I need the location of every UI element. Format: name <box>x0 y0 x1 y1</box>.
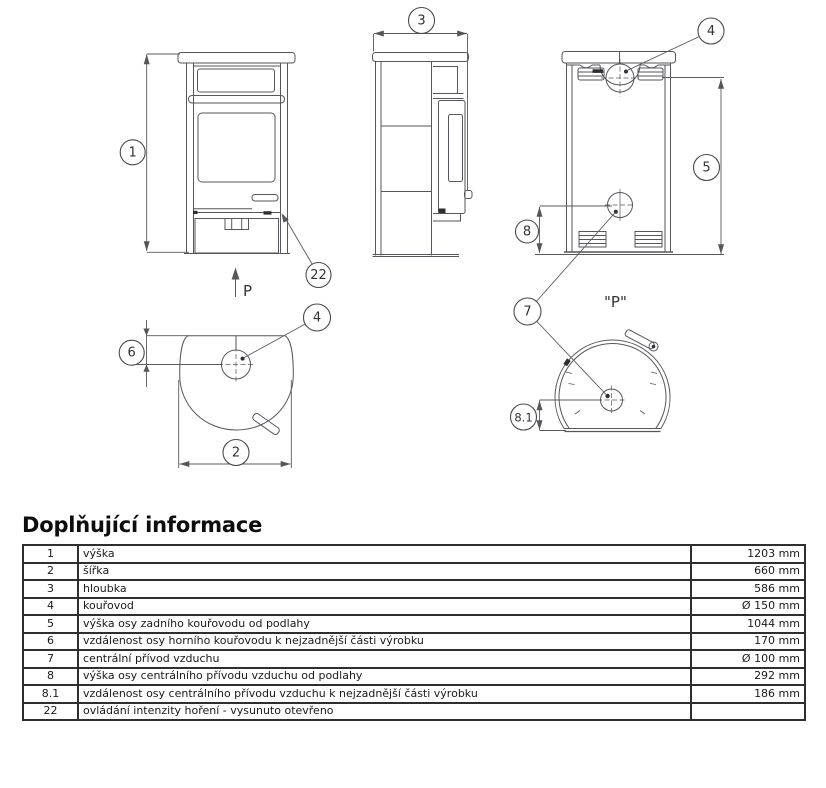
row-number: 7 <box>23 650 78 668</box>
dimension-height <box>147 54 189 252</box>
technical-drawing: P <box>0 0 826 512</box>
rear-view-label: "P" <box>604 293 627 311</box>
ash-drawer <box>195 219 279 254</box>
row-number: 8 <box>23 668 78 686</box>
svg-text:5: 5 <box>702 161 710 176</box>
row-number: 8.1 <box>23 685 78 703</box>
dimension-air-height <box>540 206 613 253</box>
callout-6: 6 <box>119 340 144 365</box>
svg-text:4: 4 <box>313 311 321 326</box>
row-value: 586 mm <box>691 580 805 598</box>
callout-2: 2 <box>223 440 249 466</box>
row-value: 292 mm <box>691 668 805 686</box>
callout-22: 22 <box>306 263 331 288</box>
row-description: ovládání intenzity hoření - vysunuto ote… <box>78 703 691 721</box>
manual-page: { "diagram": { "callouts": { "n1": "1", … <box>0 0 826 788</box>
callout-3: 3 <box>409 8 435 34</box>
table-row: 2 šířka 660 mm <box>23 563 805 581</box>
shelf-band <box>189 96 285 104</box>
svg-text:7: 7 <box>523 305 531 320</box>
top-view <box>180 336 294 436</box>
row-description: hloubka <box>78 580 691 598</box>
callout-5: 5 <box>694 155 720 181</box>
row-description: kouřovod <box>78 598 691 616</box>
front-view <box>178 53 295 254</box>
svg-text:6: 6 <box>128 346 136 361</box>
dimension-flue-offset <box>133 320 222 387</box>
svg-text:8: 8 <box>523 225 531 240</box>
table-row: 6 vzdálenost osy horního kouřovodu k nej… <box>23 633 805 651</box>
row-value: 660 mm <box>691 563 805 581</box>
callout-4-top: 4 <box>304 304 331 331</box>
row-description: vzdálenost osy centrálního přívodu vzduc… <box>78 685 691 703</box>
row-description: šířka <box>78 563 691 581</box>
row-number: 22 <box>23 703 78 721</box>
row-description: vzdálenost osy horního kouřovodu k nejza… <box>78 633 691 651</box>
svg-text:2: 2 <box>232 446 240 461</box>
dimension-depth <box>374 34 468 191</box>
row-value: Ø 150 mm <box>691 598 805 616</box>
callout-8-1: 8.1 <box>511 404 537 430</box>
row-value <box>691 703 805 721</box>
row-description: centrální přívod vzduchu <box>78 650 691 668</box>
row-description: výška osy zadního kouřovodu od podlahy <box>78 615 691 633</box>
table-row: 8.1 vzdálenost osy centrálního přívodu v… <box>23 685 805 703</box>
front-direction-label: P <box>243 282 252 300</box>
section-title: Doplňující informace <box>22 513 806 537</box>
row-number: 5 <box>23 615 78 633</box>
table-row: 22 ovládání intenzity hoření - vysunuto … <box>23 703 805 721</box>
row-value: 170 mm <box>691 633 805 651</box>
dimension-air-offset <box>540 400 603 431</box>
warming-compartment <box>194 66 281 96</box>
back-view <box>562 52 676 253</box>
row-number: 6 <box>23 633 78 651</box>
table-row: 7 centrální přívod vzduchu Ø 100 mm <box>23 650 805 668</box>
row-number: 4 <box>23 598 78 616</box>
row-number: 3 <box>23 580 78 598</box>
svg-text:22: 22 <box>310 268 327 283</box>
bottom-view <box>555 329 670 432</box>
side-handle-knob <box>465 191 473 199</box>
callout-1: 1 <box>120 140 145 165</box>
door-glass <box>198 113 275 182</box>
additional-info-section: Doplňující informace 1 výška 1203 mm 2 š… <box>22 513 806 721</box>
svg-text:3: 3 <box>417 14 425 29</box>
callout-4-back: 4 <box>698 18 724 44</box>
door-handle <box>252 195 278 202</box>
top-control-handle <box>252 412 281 435</box>
callout-7: 7 <box>514 298 541 325</box>
table-row: 3 hloubka 586 mm <box>23 580 805 598</box>
table-row: 4 kouřovod Ø 150 mm <box>23 598 805 616</box>
side-view <box>373 53 473 257</box>
direction-arrow-p: P <box>232 268 252 301</box>
callout-8: 8 <box>516 220 539 243</box>
svg-text:8.1: 8.1 <box>514 411 532 425</box>
leader-lines <box>244 31 712 396</box>
row-number: 1 <box>23 545 78 563</box>
svg-text:1: 1 <box>129 145 137 160</box>
callouts: 1 2 3 4 4 5 6 7 <box>119 8 724 466</box>
svg-text:4: 4 <box>707 24 715 39</box>
row-value: 1203 mm <box>691 545 805 563</box>
row-value: 1044 mm <box>691 615 805 633</box>
row-description: výška osy centrálního přívodu vzduchu od… <box>78 668 691 686</box>
spec-table: 1 výška 1203 mm 2 šířka 660 mm 3 hloubka… <box>22 544 806 721</box>
row-description: výška <box>78 545 691 563</box>
row-value: 186 mm <box>691 685 805 703</box>
table-row: 5 výška osy zadního kouřovodu od podlahy… <box>23 615 805 633</box>
table-row: 8 výška osy centrálního přívodu vzduchu … <box>23 668 805 686</box>
side-door <box>439 101 466 214</box>
row-value: Ø 100 mm <box>691 650 805 668</box>
row-number: 2 <box>23 563 78 581</box>
table-row: 1 výška 1203 mm <box>23 545 805 563</box>
